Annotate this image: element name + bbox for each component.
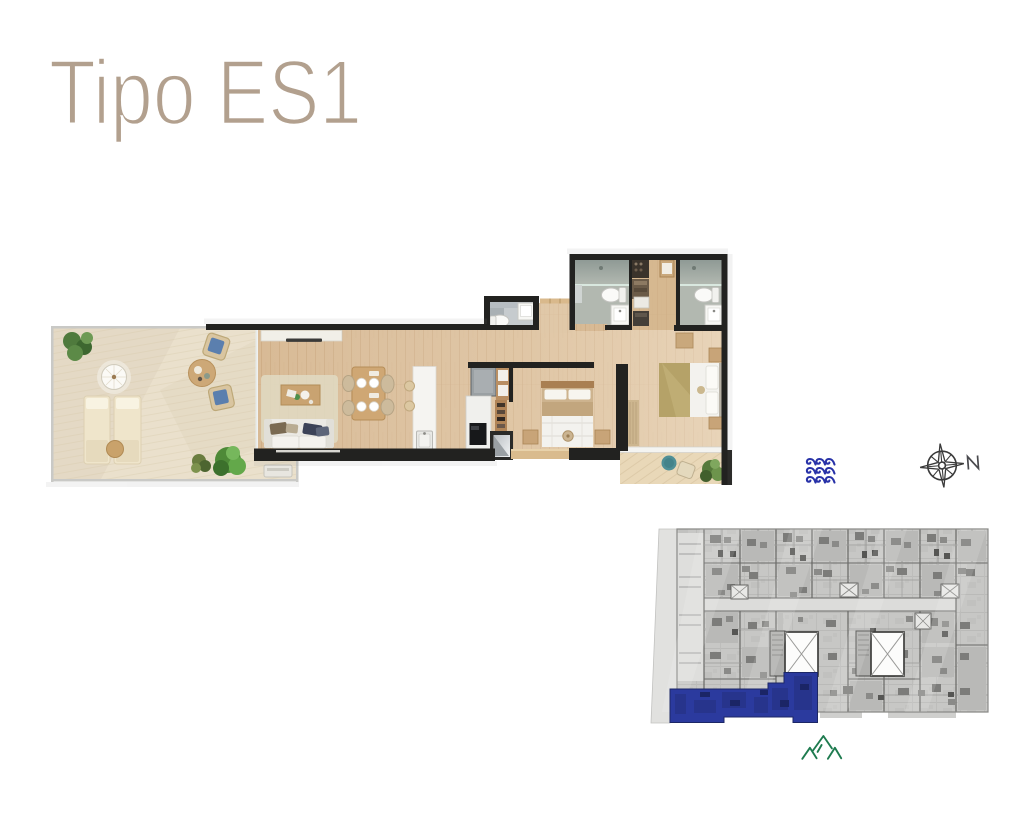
svg-text:Tipo ES1: Tipo ES1 — [49, 42, 362, 144]
